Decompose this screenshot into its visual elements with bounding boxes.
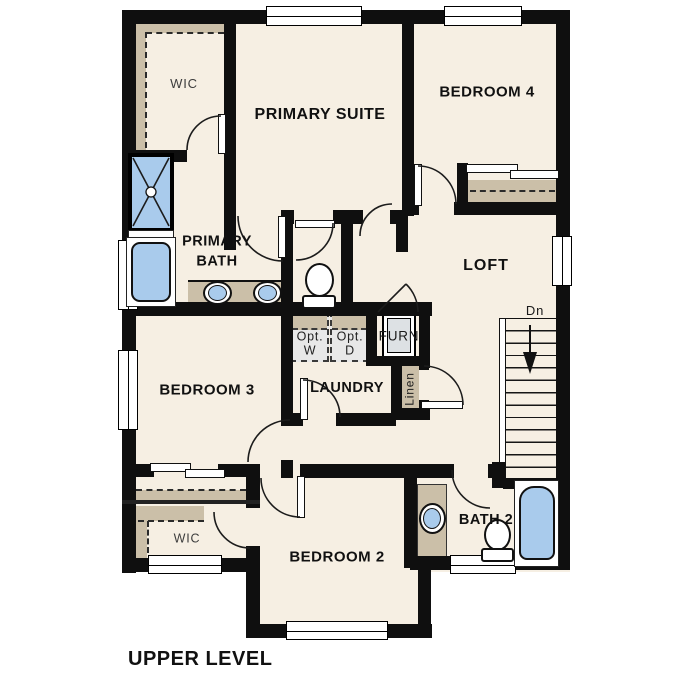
primary-toilet-bowl-icon xyxy=(305,263,334,297)
primary-toilet-tank-icon xyxy=(302,295,336,309)
window-bedroom4 xyxy=(444,6,522,26)
label-primary-suite: PRIMARY SUITE xyxy=(250,104,390,126)
primary-bath-door-leaf xyxy=(278,216,286,258)
label-opt-washer: Opt. W xyxy=(293,330,327,359)
bath2-toilet-tank-icon xyxy=(481,548,514,562)
wall-bedroom2-east-low xyxy=(418,560,431,638)
label-primary-bath: PRIMARY BATH xyxy=(162,232,272,273)
label-wic-top: WIC xyxy=(170,75,198,93)
window-loft xyxy=(552,236,572,286)
bedroom4-door-leaf xyxy=(414,164,422,206)
floor-plan: WIC PRIMARY SUITE BEDROOM 4 PRIMARY BATH… xyxy=(0,0,687,687)
label-linen: Linen xyxy=(402,372,419,405)
wall-closet-divider xyxy=(122,500,260,504)
wic-top-shelf-dash-h xyxy=(146,32,224,34)
primary-sink-2-basin xyxy=(258,285,277,301)
wic-top-door-leaf xyxy=(218,114,226,154)
bedroom4-closet-dash xyxy=(470,190,555,192)
label-bath-2: BATH 2 xyxy=(459,510,513,530)
wall-bedroom2-west-b xyxy=(246,546,260,638)
label-furnace: FURN xyxy=(379,328,420,347)
bedroom3-closet-door-panel-2 xyxy=(185,469,225,478)
page-title: UPPER LEVEL xyxy=(128,648,272,671)
bedroom4-closet-door-panel-2 xyxy=(510,170,559,179)
wall-bedroom2-east xyxy=(404,464,417,568)
staircase xyxy=(503,318,556,480)
wall-watercloset-east xyxy=(341,210,353,310)
bedroom2-door-leaf xyxy=(297,476,305,518)
window-bedroom3 xyxy=(118,350,138,430)
wall-laundry-south-b xyxy=(336,413,396,426)
bath2-tub-icon xyxy=(519,486,555,560)
label-bedroom-3: BEDROOM 3 xyxy=(159,380,254,401)
laundry-door-leaf xyxy=(300,378,308,420)
label-loft: LOFT xyxy=(463,255,509,277)
bath2-sink-basin xyxy=(423,508,441,529)
wall-bedroom3-east-nub xyxy=(281,460,293,478)
window-wic-bottom xyxy=(148,555,222,574)
wic-bottom-shelf-left xyxy=(136,506,147,558)
bedroom3-closet-dash xyxy=(136,489,246,491)
label-bedroom-4: BEDROOM 4 xyxy=(439,82,534,103)
label-opt-dryer: Opt. D xyxy=(333,330,367,359)
wall-bedroom3-east xyxy=(281,302,293,424)
wic-bottom-shelf-dash-v xyxy=(147,521,149,553)
stair-stringer xyxy=(499,318,506,481)
label-laundry: LAUNDRY xyxy=(310,378,384,398)
label-stairs-down: Dn xyxy=(526,302,544,320)
primary-sink-1-basin xyxy=(208,285,227,301)
wall-bedroom4-south-b xyxy=(454,202,557,215)
watercloset-door-leaf xyxy=(295,220,335,228)
linen-door-leaf xyxy=(421,401,463,409)
wall-linen-south xyxy=(391,408,430,420)
wall-hall-south-a xyxy=(300,464,454,478)
window-primary-suite xyxy=(266,6,362,26)
wall-linen-east-a xyxy=(419,356,429,370)
label-bedroom-2: BEDROOM 2 xyxy=(289,547,384,568)
wall-suite-east xyxy=(402,24,414,216)
wall-vestibule-east xyxy=(396,210,408,252)
window-bedroom2 xyxy=(286,621,388,640)
label-wic-bottom: WIC xyxy=(174,530,201,548)
shower-icon xyxy=(128,153,174,232)
wic-top-shelf-dash-v xyxy=(145,32,147,148)
